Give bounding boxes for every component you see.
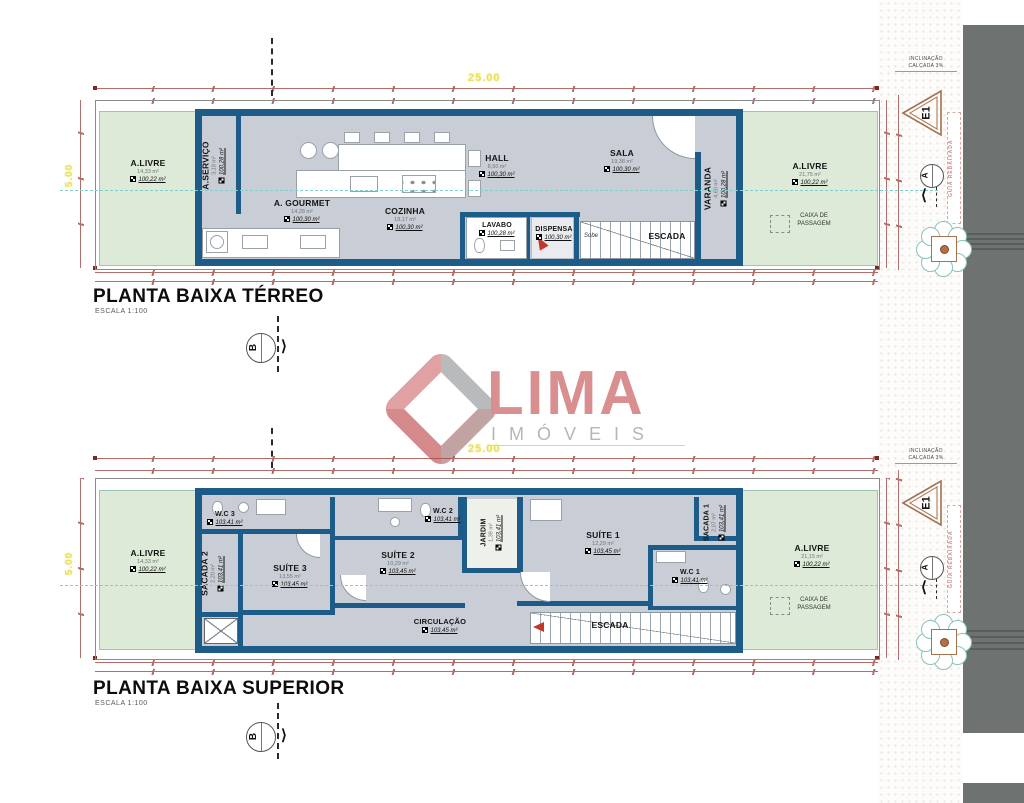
plan-title-upper: PLANTA BAIXA SUPERIOR: [93, 678, 345, 700]
corner-marker: [93, 86, 97, 90]
section-line-a: [60, 585, 938, 586]
street-marking: [963, 642, 1024, 644]
stool-icon: [434, 132, 450, 143]
sidewalk-incline-note: INCLINAÇÃO CALÇADA 3%: [895, 56, 957, 72]
section-b-marker: B: [246, 722, 276, 752]
wall-segment: [517, 601, 652, 606]
section-line-a: [60, 190, 938, 191]
dimension-line: [95, 281, 878, 282]
tree-icon: [916, 221, 972, 277]
dimension-line: [95, 458, 878, 459]
wall-segment: [648, 606, 743, 610]
corner-marker: [93, 456, 97, 460]
street-asphalt: [963, 783, 1024, 803]
wall-segment: [517, 497, 523, 572]
dimension-height-ground: 5.00: [64, 164, 75, 187]
lima-logo-subtitle: IMÓVEIS: [491, 424, 657, 445]
section-arrow-icon: ⟩: [281, 337, 287, 355]
dimension-line: [898, 470, 899, 660]
stool-icon: [344, 132, 360, 143]
wall-segment: [240, 610, 335, 615]
stairs-direction-label: Sobe: [584, 233, 598, 239]
section-arrow-icon: ⟨: [921, 578, 927, 596]
open-area-left-upper: [99, 490, 198, 650]
wall-segment: [527, 217, 530, 259]
section-line-b: [271, 428, 273, 468]
open-area-right-ground: [741, 111, 878, 266]
section-arrow-icon: ⟨: [921, 186, 927, 204]
junction-box: [770, 597, 790, 615]
dimension-line: [886, 478, 887, 658]
stairs-break-line: [531, 613, 735, 643]
lavabo-floor: [466, 217, 527, 259]
logo-underline: [489, 445, 685, 446]
section-line-b: [277, 316, 279, 372]
plan-title-ground: PLANTA BAIXA TÉRREO: [93, 286, 324, 308]
wall-segment: [202, 612, 243, 617]
lowered-curb-label: GUIA REBAIXADA: [947, 112, 961, 224]
section-arrow-icon: ⟩: [281, 726, 287, 744]
plan-scale-ground: ESCALA 1:100: [95, 308, 148, 315]
kitchen-counter: [296, 170, 466, 198]
sink-icon: [238, 502, 249, 513]
chair-icon: [322, 142, 339, 159]
dimension-line: [95, 272, 878, 273]
stairs-ground: [580, 221, 695, 259]
jardim-floor: [467, 499, 517, 568]
corner-marker: [875, 456, 879, 460]
open-area-right-upper: [741, 490, 878, 650]
sink-icon: [390, 517, 400, 527]
street-asphalt: [963, 25, 1024, 733]
dimension-width-ground: 25.00: [468, 72, 501, 84]
open-area-left-ground: [99, 111, 198, 266]
laundry-sink-icon: [242, 235, 268, 249]
wall-segment: [335, 536, 462, 540]
section-line-b: [271, 38, 273, 96]
tree-icon: [916, 614, 972, 670]
street-marking: [963, 648, 1024, 650]
wall-segment: [648, 545, 743, 550]
stool-icon: [404, 132, 420, 143]
section-line-b: [277, 703, 279, 759]
lima-logo-text: LIMA: [487, 357, 646, 429]
dimension-line: [886, 100, 887, 268]
washer-drum-icon: [210, 235, 224, 249]
wall-segment: [694, 497, 699, 539]
corner-marker: [875, 86, 879, 90]
street-marking: [963, 630, 1024, 632]
kitchen-island-table: [338, 144, 466, 171]
lowered-curb-label: GUIA REBAIXADA: [947, 505, 961, 613]
stairs-break-line: [581, 222, 694, 258]
dimension-line: [95, 671, 878, 672]
junction-box-label: CAIXA DE PASSAGEM: [790, 213, 838, 228]
entry-marker-e1: E1: [900, 478, 944, 533]
stool-icon: [468, 150, 481, 167]
section-a-marker: A: [920, 556, 944, 580]
street-marking: [963, 233, 1024, 235]
wall-segment: [460, 217, 465, 259]
toilet-icon: [420, 503, 431, 517]
dimension-line: [898, 95, 899, 270]
dimension-height-upper: 5.00: [64, 552, 75, 575]
sidewalk-incline-note: INCLINAÇÃO CALÇADA 3%: [895, 448, 957, 464]
shower-icon: [256, 499, 286, 515]
shaft-box: [204, 618, 238, 644]
dimension-line: [95, 88, 878, 89]
street-marking: [963, 243, 1024, 245]
wall-segment: [236, 116, 241, 214]
plan-scale-upper: ESCALA 1:100: [95, 700, 148, 707]
stool-icon: [374, 132, 390, 143]
section-line-a-end: [936, 187, 937, 207]
stool-icon: [468, 180, 481, 197]
counter-sink-icon: [300, 235, 326, 249]
wardrobe-icon: [530, 499, 562, 521]
toilet-icon: [212, 501, 223, 515]
vanity-counter-icon: [378, 498, 412, 512]
wall-segment: [330, 497, 335, 612]
dimension-line: [80, 478, 81, 658]
junction-box-label: CAIXA DE PASSAGEM: [790, 597, 838, 612]
wall-segment: [694, 536, 743, 541]
section-b-marker: B: [246, 333, 276, 363]
stairs-arrow-icon: [533, 622, 544, 632]
vanity-counter-icon: [656, 551, 686, 563]
wall-segment: [335, 603, 465, 608]
wall-segment: [695, 152, 701, 259]
street-marking: [963, 248, 1024, 250]
chair-icon: [300, 142, 317, 159]
dimension-line: [80, 100, 81, 268]
wall-segment: [462, 568, 523, 573]
floor-plan-sheet: 25.00 5.00 A.LIVRE 14,33 m² 100,22: [0, 0, 1024, 803]
dimension-line: [95, 662, 878, 663]
junction-box: [770, 215, 790, 233]
wall-segment: [574, 217, 579, 259]
wall-segment: [238, 534, 243, 646]
wall-segment: [648, 545, 653, 608]
entry-marker-e1: E1: [900, 88, 944, 143]
street-marking: [963, 636, 1024, 638]
street-marking: [963, 238, 1024, 240]
dimension-width-upper: 25.00: [468, 443, 501, 455]
toilet-icon: [474, 238, 485, 253]
dimension-line: [95, 470, 878, 471]
section-a-marker: A: [920, 164, 944, 188]
stairs-upper: [530, 612, 736, 644]
sink-icon: [500, 240, 515, 251]
section-line-a-end: [936, 579, 937, 599]
